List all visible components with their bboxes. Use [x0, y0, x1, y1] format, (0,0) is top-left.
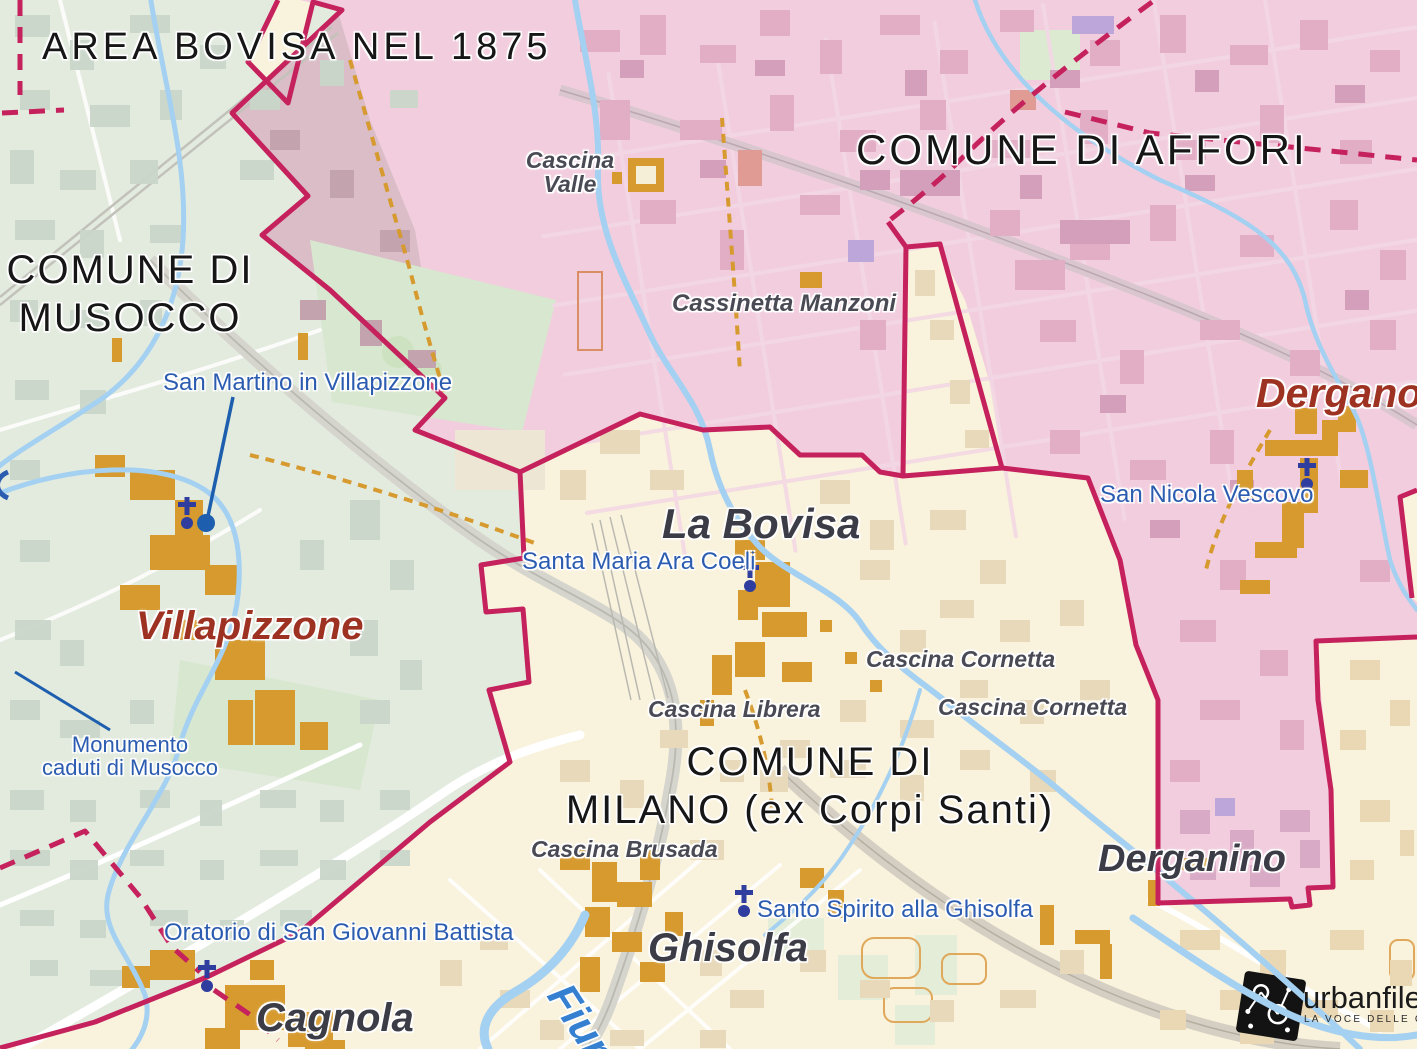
- poi-label-santa-maria: Santa Maria Ara Coeli: [522, 549, 755, 574]
- map-canvas: AREA BOVISA NEL 1875 COMUNE DI MUSOCCO C…: [0, 0, 1417, 1049]
- logo-tagline: LA VOCE DELLE CITTA: [1304, 1014, 1417, 1025]
- label-cascina-cornetta-2: Cascina Cornetta: [938, 695, 1127, 719]
- label-cascina-brusada: Cascina Brusada: [531, 837, 718, 861]
- commune-label-milano: COMUNE DI MILANO (ex Corpi Santi): [566, 738, 1054, 834]
- commune-musocco-line1: COMUNE DI: [7, 246, 254, 294]
- marker-dot-san-martino: [197, 514, 215, 532]
- commune-milano-line1: COMUNE DI: [566, 738, 1054, 786]
- poi-label-oratorio: Oratorio di San Giovanni Battista: [164, 920, 514, 945]
- label-cassinetta-manzoni: Cassinetta Manzoni: [672, 291, 896, 316]
- monumento-line1: Monumento: [42, 733, 218, 756]
- cascina-valle-courtyard: [636, 166, 656, 184]
- district-label-cagnola: Cagnola: [256, 996, 414, 1041]
- district-label-villapizzone: Villapizzone: [136, 604, 363, 649]
- district-label-ghisolfa: Ghisolfa: [648, 926, 808, 971]
- commune-label-affori: COMUNE DI AFFORI: [856, 126, 1308, 174]
- map-title: AREA BOVISA NEL 1875: [42, 26, 552, 69]
- commune-milano-line2: MILANO (ex Corpi Santi): [566, 786, 1054, 834]
- monumento-line2: caduti di Musocco: [42, 756, 218, 779]
- district-label-derganino: Derganino: [1098, 838, 1286, 881]
- cascina-valle-line1: Cascina: [526, 148, 614, 172]
- district-label-la-bovisa: La Bovisa: [662, 500, 860, 548]
- cascina-valle-line2: Valle: [526, 172, 614, 196]
- poi-label-san-nicola: San Nicola Vescovo: [1100, 482, 1313, 507]
- poi-label-monumento: Monumento caduti di Musocco: [42, 733, 218, 779]
- poi-label-santo-spirito: Santo Spirito alla Ghisolfa: [757, 897, 1033, 922]
- label-cascina-librera: Cascina Librera: [648, 697, 821, 721]
- commune-musocco-line2: MUSOCCO: [7, 294, 254, 342]
- logo-wordmark: urbanfile: [1303, 980, 1417, 1016]
- label-cascina-cornetta-1: Cascina Cornetta: [866, 647, 1055, 671]
- label-cascina-valle: Cascina Valle: [526, 148, 614, 196]
- district-label-dergano: Dergano: [1256, 370, 1417, 417]
- commune-label-musocco: COMUNE DI MUSOCCO: [130, 246, 377, 342]
- poi-label-san-martino: San Martino in Villapizzone: [163, 370, 452, 395]
